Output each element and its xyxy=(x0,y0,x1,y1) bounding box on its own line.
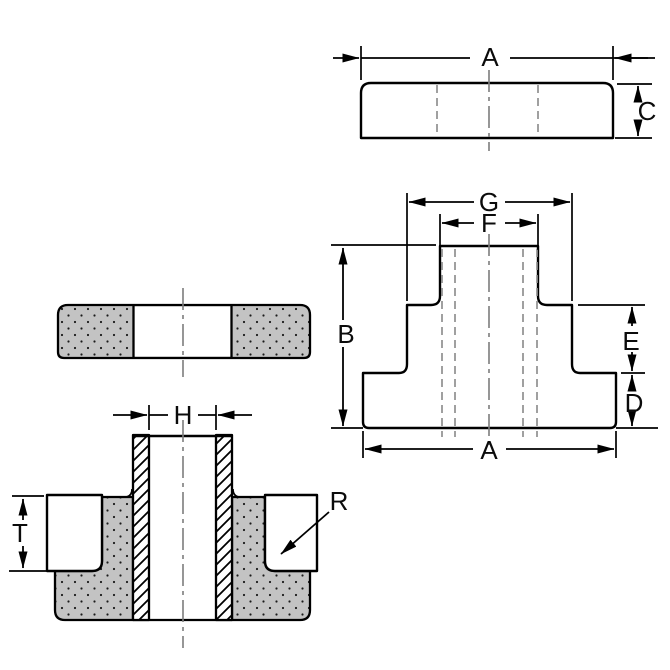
assembly-sleeve-wall-left xyxy=(133,435,149,620)
plan-washer-outline xyxy=(361,83,613,138)
assembly-corner-radius-label: R xyxy=(330,486,349,516)
washer-section-view xyxy=(58,288,310,377)
profile-base-width-label: A xyxy=(480,435,498,465)
profile-base-height-label: D xyxy=(625,388,644,418)
assembly-plate-left xyxy=(47,495,102,571)
profile-height-label: B xyxy=(337,319,354,349)
assembly-fillet-right xyxy=(233,489,239,497)
assembly-plate-thickness-label: T xyxy=(12,518,28,548)
technical-drawing: A C G F B xyxy=(0,0,670,670)
profile-neck-width-label: F xyxy=(481,208,497,238)
profile-step-height-label: E xyxy=(622,326,639,356)
plan-thickness-label: C xyxy=(638,96,657,126)
assembly-fillet-left xyxy=(126,489,132,497)
plan-width-label: A xyxy=(481,42,499,72)
plan-view: A C xyxy=(333,42,656,151)
assembly-sleeve-wall-right xyxy=(216,435,232,620)
assembly-plate-right xyxy=(265,495,317,571)
assembly-section-view: H T R xyxy=(9,400,348,648)
assembly-bore-label: H xyxy=(174,400,193,430)
drawing-canvas: A C G F B xyxy=(0,0,670,670)
profile-view: G F B E D A xyxy=(331,187,658,465)
